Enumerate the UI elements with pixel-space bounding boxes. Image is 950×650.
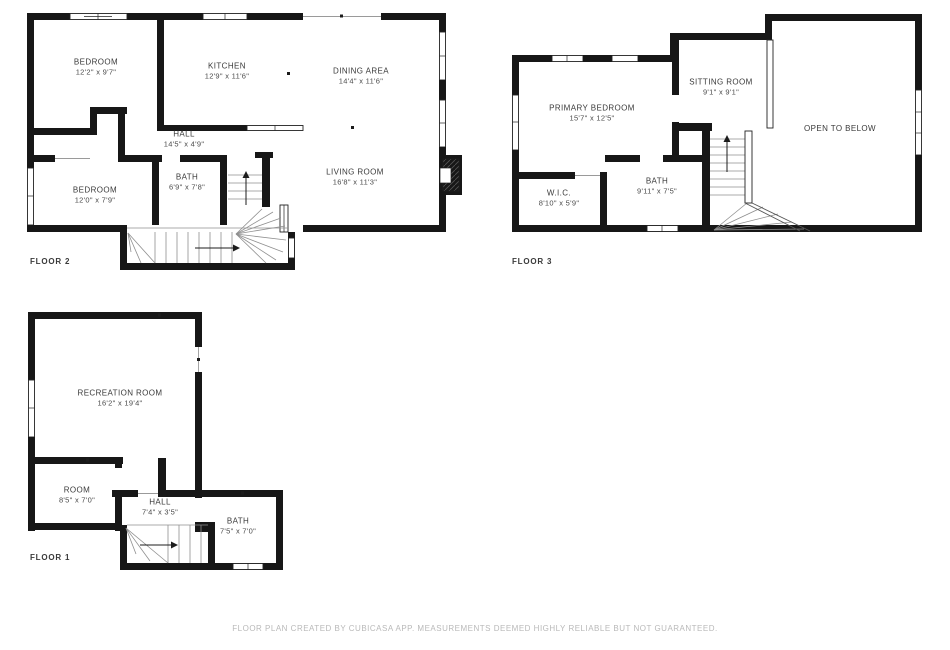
- window-icon: [647, 226, 678, 232]
- room-label-f1-recreation-room: RECREATION ROOM 16'2" x 19'4": [78, 389, 163, 408]
- room-label-f1-bath: BATH 7'5" x 7'0": [220, 517, 256, 536]
- stairs-up: [228, 175, 262, 199]
- room-label-f1-hall: HALL 7'4" x 3'5": [142, 498, 178, 517]
- room-label-f2-bedroom-1: BEDROOM 12'2" x 9'7": [74, 58, 118, 77]
- floor1-title: FLOOR 1: [30, 553, 70, 562]
- window-icon: [289, 238, 295, 258]
- window-icon: [552, 56, 583, 62]
- staircase: [127, 209, 288, 263]
- window-icon: [916, 90, 922, 155]
- footer-disclaimer: FLOOR PLAN CREATED BY CUBICASA APP. MEAS…: [232, 624, 717, 633]
- window-icon: [440, 100, 446, 147]
- floor3-title: FLOOR 3: [512, 257, 552, 266]
- window-icon: [203, 14, 247, 20]
- stair-railing: [745, 131, 752, 203]
- window-icon: [29, 380, 35, 437]
- room-label-f2-kitchen: KITCHEN 12'9" x 11'6": [205, 62, 249, 81]
- window-icon: [440, 32, 446, 80]
- pass-through-window: [247, 126, 303, 131]
- floor2-title: FLOOR 2: [30, 257, 70, 266]
- room-label-f3-bath: BATH 9'11" x 7'5": [637, 177, 677, 196]
- window-icon: [70, 14, 127, 20]
- window-icon: [513, 95, 519, 150]
- room-label-f3-wic: W.I.C. 8'10" x 5'9": [539, 189, 580, 208]
- railing: [767, 40, 773, 128]
- room-label-f2-bedroom-2: BEDROOM 12'0" x 7'9": [73, 186, 117, 205]
- window-icon: [28, 168, 34, 225]
- floor-plan-page: BEDROOM 12'2" x 9'7" KITCHEN 12'9" x 11'…: [0, 0, 950, 650]
- floor2-plan: [27, 13, 462, 270]
- staircase: [710, 139, 804, 230]
- room-label-f1-room: ROOM 8'5" x 7'0": [59, 486, 95, 505]
- room-label-f3-sitting-room: SITTING ROOM 9'1" x 9'1": [689, 78, 752, 97]
- room-label-f2-dining-area: DINING AREA 14'4" x 11'6": [333, 67, 389, 86]
- fireplace-icon: [439, 155, 462, 195]
- room-label-f2-bath: BATH 6'9" x 7'8": [169, 173, 205, 192]
- window-icon: [612, 56, 638, 62]
- window-icon: [233, 564, 263, 570]
- room-label-f3-primary-bedroom: PRIMARY BEDROOM 15'7" x 12'5": [549, 104, 635, 123]
- room-label-f3-open-to-below: OPEN TO BELOW: [804, 124, 876, 134]
- floor-plan-drawing: [0, 0, 950, 650]
- room-label-f2-living-room: LIVING ROOM 16'8" x 11'3": [326, 168, 384, 187]
- room-label-f2-hall: HALL 14'5" x 4'9": [164, 130, 205, 149]
